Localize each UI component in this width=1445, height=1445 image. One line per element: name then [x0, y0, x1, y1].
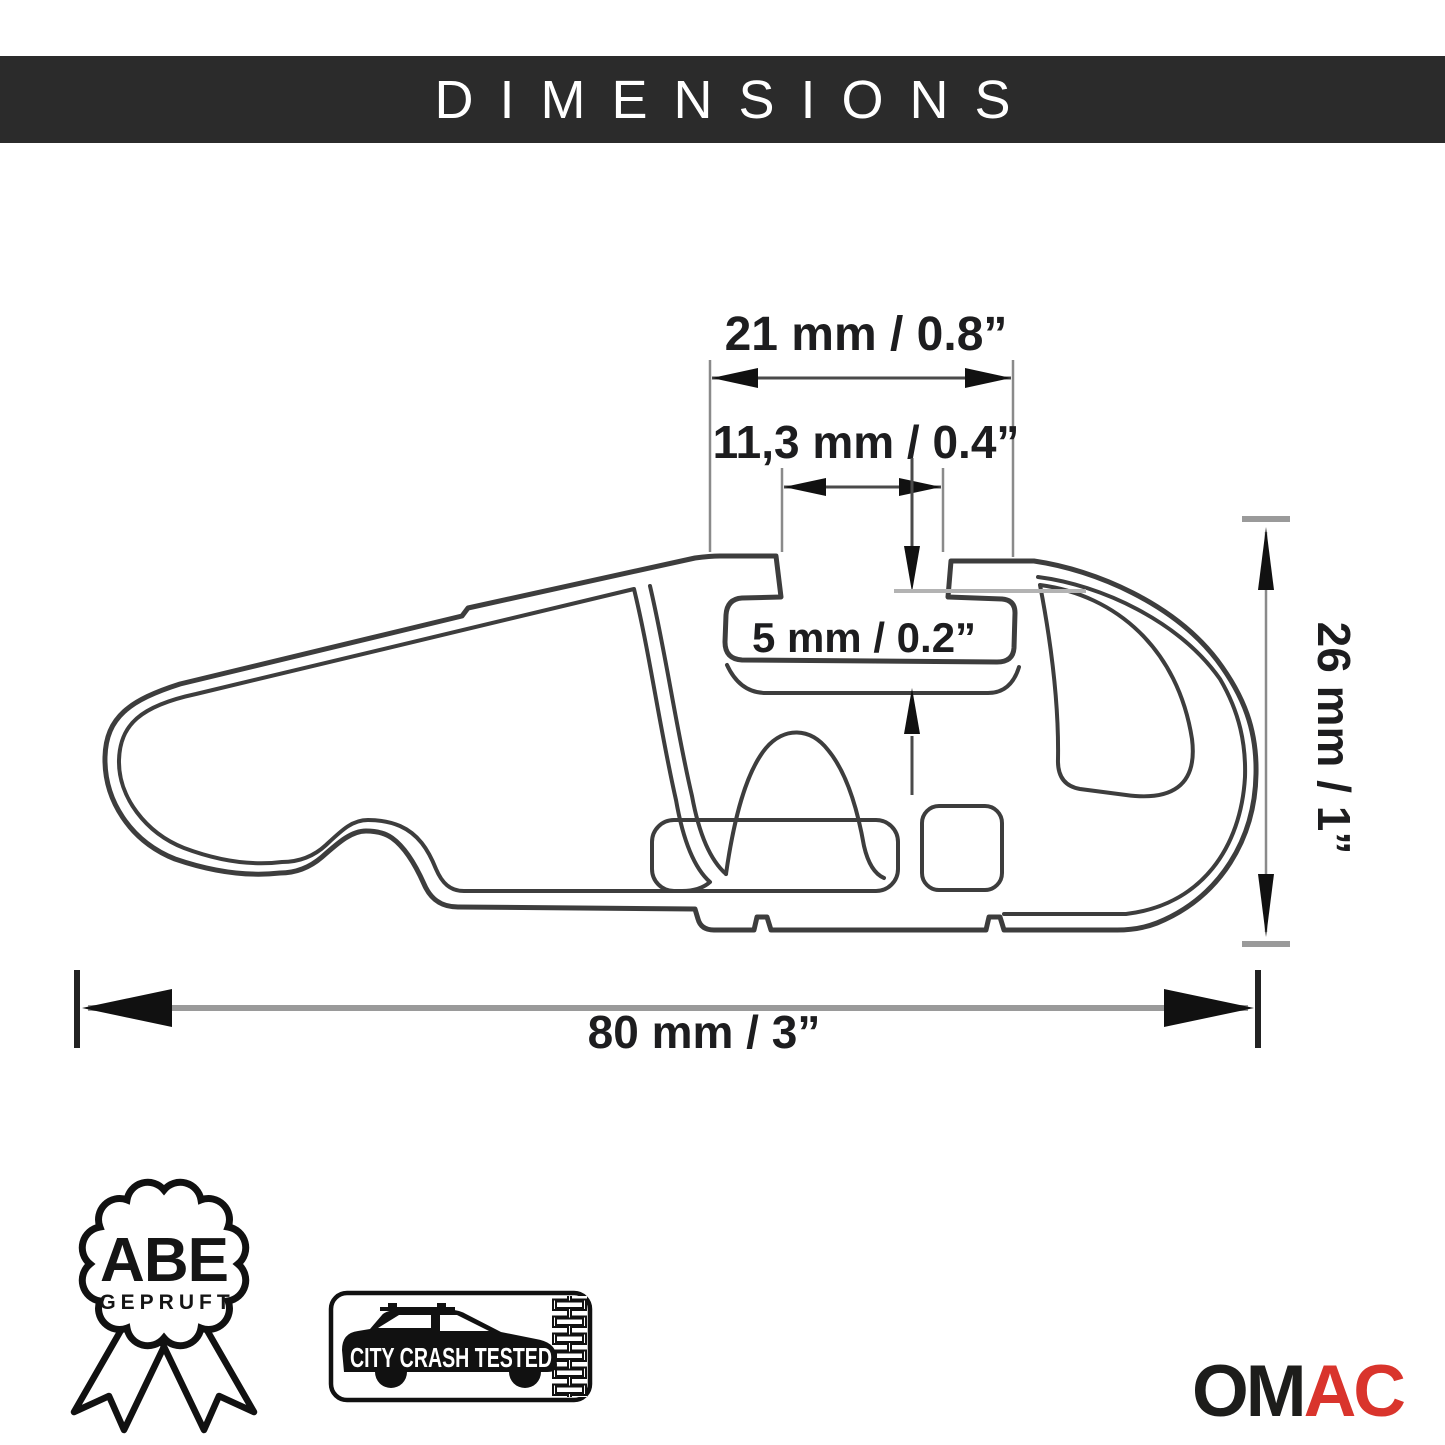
roof-rack-bar-icon	[380, 1307, 455, 1311]
arrowhead-left-icon	[712, 368, 758, 388]
dimension-label: 26 mm / 1”	[1308, 622, 1360, 855]
arrowhead-left-icon	[82, 989, 172, 1027]
end-tick	[74, 970, 80, 1048]
end-tick	[1242, 516, 1290, 522]
crash-test-label: CITY CRASH TESTED	[350, 1342, 552, 1373]
brick-wall-graphic	[552, 1296, 587, 1397]
profile-channel-lower-wall	[727, 665, 1019, 693]
profile-lower-right-pocket	[922, 806, 1002, 890]
city-crash-tested-badge: CITY CRASH TESTED	[331, 1293, 590, 1400]
arrowhead-down-icon	[1258, 874, 1274, 937]
profile-right-inner-wall	[1004, 577, 1245, 914]
end-tick	[1255, 970, 1261, 1048]
omac-logo-prefix: OM	[1192, 1351, 1304, 1432]
dimension-label: 5 mm / 0.2”	[752, 614, 976, 661]
dimension-label: 80 mm / 3”	[588, 1006, 821, 1058]
arrowhead-right-icon	[1164, 989, 1254, 1027]
profile-hump	[726, 732, 884, 878]
abe-subtitle: GEPRUFT	[99, 1291, 234, 1314]
arrowhead-left-icon	[784, 478, 826, 496]
omac-logo: OMAC	[1192, 1350, 1422, 1428]
dimension-label: 11,3 mm / 0.4”	[713, 416, 1020, 468]
abe-title: ABE	[100, 1226, 228, 1295]
profile-left-pocket	[119, 589, 710, 891]
dimension-label: 21 mm / 0.8”	[725, 308, 1008, 361]
dimension-height: 26 mm / 1”	[1242, 516, 1360, 947]
arrowhead-right-icon	[965, 368, 1011, 388]
arrowhead-right-icon	[899, 478, 941, 496]
crossbar-profile-drawing	[105, 556, 1256, 930]
dimension-overall-width: 80 mm / 3”	[74, 970, 1261, 1058]
arrowhead-down-icon	[904, 546, 920, 592]
arrowhead-up-icon	[1258, 527, 1274, 590]
dimension-diagram: 21 mm / 0.8” 11,3 mm / 0.4” 5 mm / 0.2”	[0, 0, 1445, 1445]
end-tick	[1242, 941, 1290, 947]
product-dimensions-image: DIMENSIONS	[0, 0, 1445, 1445]
dimension-slot-width: 11,3 mm / 0.4”	[713, 416, 1020, 552]
abe-badge: ABE GEPRUFT	[74, 1182, 254, 1430]
omac-logo-suffix: AC	[1304, 1351, 1403, 1432]
dimension-slot-depth: 5 mm / 0.2”	[752, 458, 1086, 795]
